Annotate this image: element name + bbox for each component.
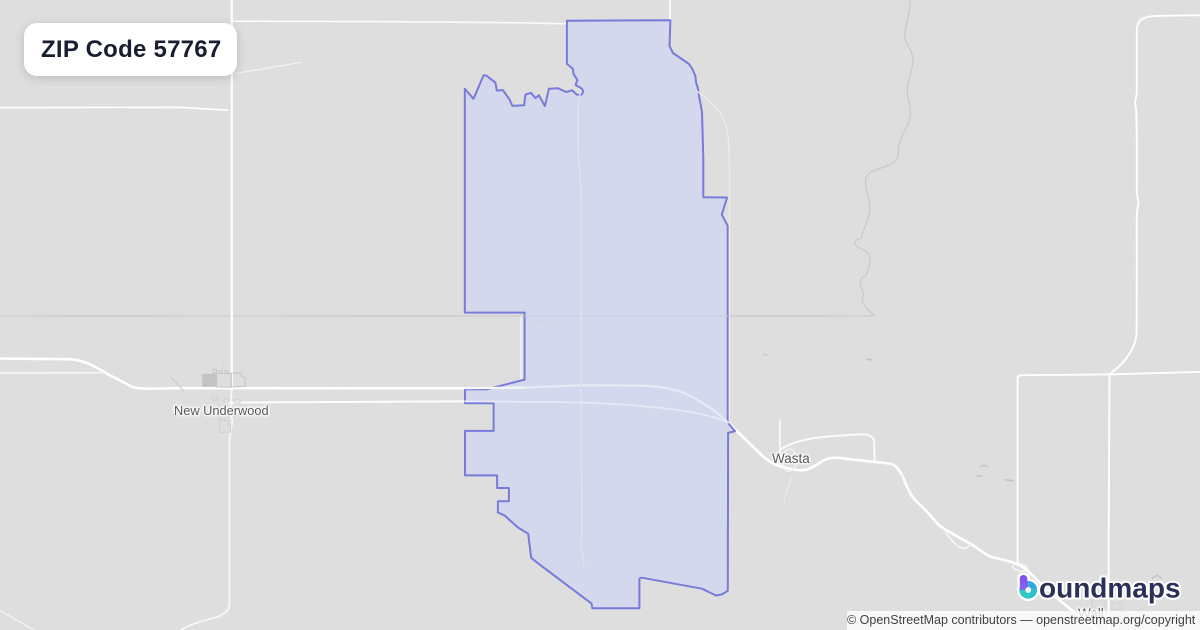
svg-text:oundmaps: oundmaps [1039, 573, 1181, 604]
